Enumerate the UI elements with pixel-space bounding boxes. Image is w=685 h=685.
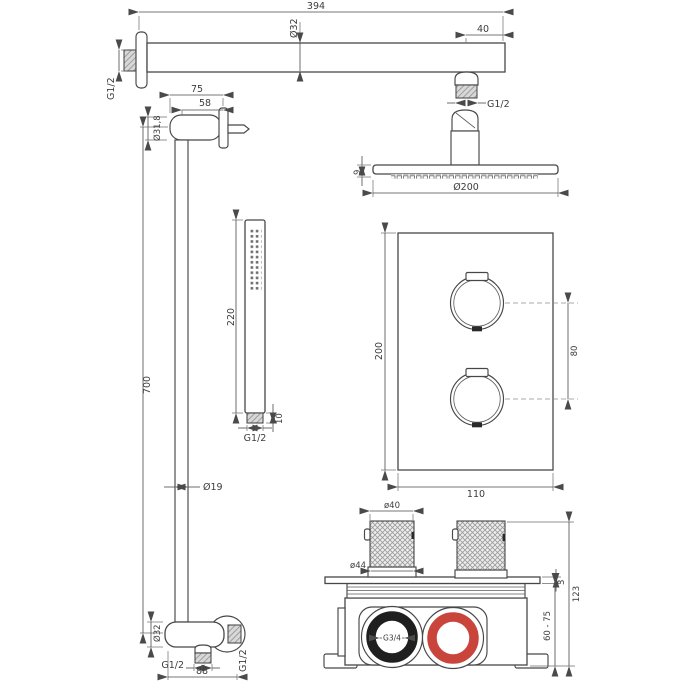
- handle-bottom-index-mark: [472, 423, 482, 428]
- head-diameter-label: Ø200: [453, 182, 479, 193]
- rail-tube: [175, 140, 188, 622]
- bracket-flange: [219, 108, 228, 148]
- plate-height-label: 200: [374, 342, 385, 360]
- arm-outlet-thread: [456, 85, 477, 98]
- plate-thickness-label: 3: [557, 580, 567, 585]
- inlet-hot: [423, 608, 484, 669]
- arm-outlet-dome: [455, 72, 478, 85]
- valve-handle-right: [453, 521, 508, 578]
- box-collar: [347, 584, 525, 599]
- handle-right-base: [455, 570, 507, 578]
- total-depth-label: 123: [572, 586, 582, 602]
- head-nozzle-strip: [391, 174, 538, 179]
- arm-wall-thread: [124, 50, 137, 71]
- handle-left-knurl: [370, 521, 414, 567]
- handle-right-nub: [453, 529, 459, 540]
- outlet-bottom-thread: [195, 653, 211, 663]
- arm-tube: [147, 43, 505, 72]
- arm-offset-label: 40: [477, 24, 489, 35]
- rail-diameter-label: Ø19: [203, 482, 223, 493]
- outlet-side-thread: [228, 625, 241, 643]
- outlet-side-thread-label: G1/2: [238, 649, 249, 672]
- box-trim-plate: [325, 577, 540, 584]
- handle-left-mark: [412, 532, 415, 539]
- inlet-thread-label: G3/4: [383, 634, 401, 643]
- plate-width-label: 110: [467, 489, 485, 500]
- handshower-connector-label: 10: [275, 413, 285, 424]
- inlet-hot-red-ring: [432, 617, 474, 659]
- installation-depth-label: 60 - 75: [543, 611, 553, 641]
- head-neck: [451, 131, 479, 165]
- arm-length-label: 394: [307, 1, 325, 12]
- outlet-bottom-thread-label: G1/2: [161, 660, 184, 671]
- arm-wall-flange: [136, 32, 147, 88]
- handshower-thread: [247, 413, 263, 423]
- rail-length-label: 700: [142, 376, 153, 394]
- head-thickness-label: 9: [353, 170, 363, 175]
- outlet-length-label: 88: [196, 666, 208, 677]
- arm-wall-thread-label: G1/2: [106, 77, 117, 100]
- arm-outlet-thread-label: G1/2: [487, 99, 510, 110]
- handshower-thread-label: G1/2: [244, 433, 267, 444]
- handle-right-knurl: [457, 521, 505, 570]
- handle-bottom-tab: [466, 369, 488, 377]
- outlet-bottom-dome: [195, 645, 211, 653]
- handle-base-diameter-label: ø44: [350, 561, 366, 571]
- valve-handle-left: [365, 521, 417, 577]
- handle-spacing-label: 80: [570, 346, 580, 357]
- inlet-cold: G3/4: [362, 607, 423, 668]
- bracket-diameter-label: Ø31,8: [152, 115, 163, 141]
- handle-top-index-mark: [472, 327, 482, 332]
- bracket-inner-projection-label: 58: [199, 98, 211, 109]
- handle-diameter-label: ø40: [384, 501, 400, 511]
- head-plate: [373, 165, 558, 174]
- dim-outlet-side-thread: G1/2: [238, 649, 249, 672]
- shower-set-dimension-diagram: 394 40 Ø32 G1/2 G1/2: [0, 0, 685, 685]
- outlet-body: [165, 622, 224, 647]
- handle-top-tab: [466, 273, 488, 281]
- handshower-length-label: 220: [226, 308, 237, 326]
- thermostat-plate: 200 110 80: [374, 233, 580, 500]
- outlet-diameter-label: Ø32: [152, 624, 163, 642]
- bracket-projection-label: 75: [191, 84, 203, 95]
- handle-right-mark: [503, 534, 506, 541]
- technical-drawing-page: 394 40 Ø32 G1/2 G1/2: [0, 0, 685, 685]
- handshower-spray-face: [249, 228, 262, 290]
- arm-diameter-label: Ø32: [289, 18, 300, 38]
- handle-left-nub: [365, 529, 371, 540]
- bracket-body: [170, 115, 221, 140]
- plate-face: [398, 233, 553, 470]
- box-side-tab: [338, 608, 345, 656]
- handle-left-base: [368, 567, 416, 577]
- bracket-pin: [228, 125, 249, 133]
